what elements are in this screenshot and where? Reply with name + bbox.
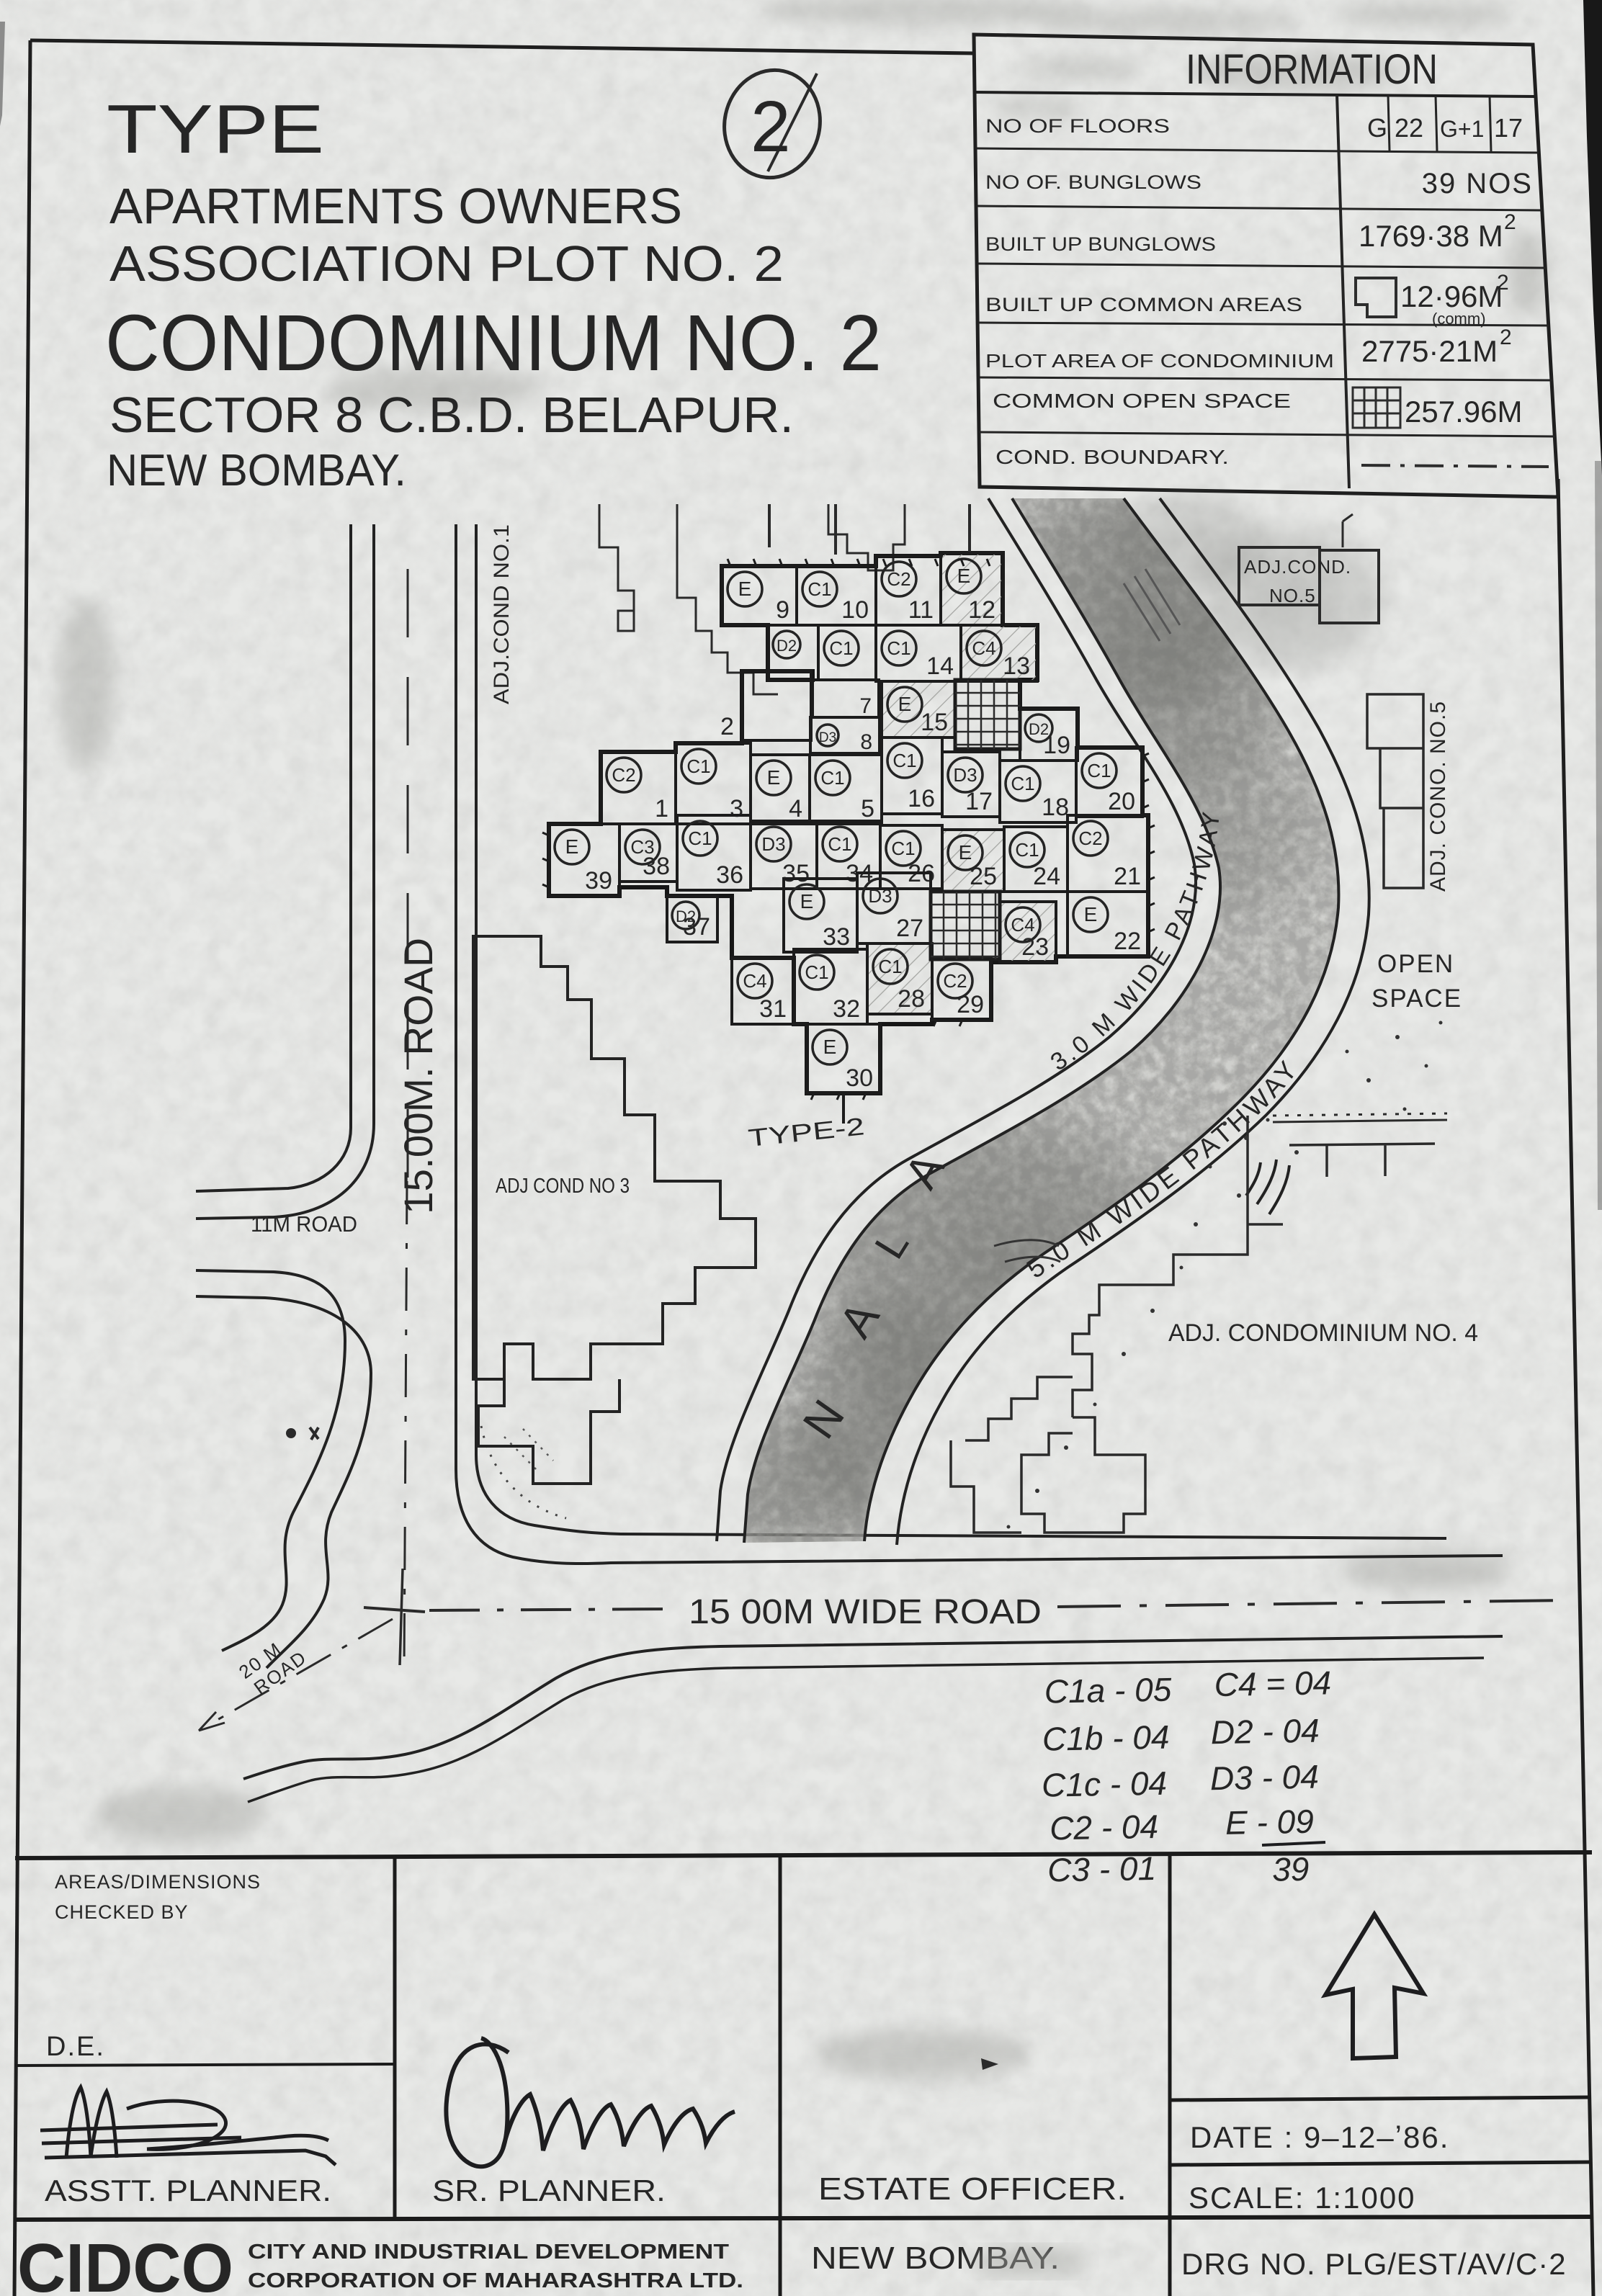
- svg-text:NEW BOMBAY.: NEW BOMBAY.: [107, 446, 406, 495]
- svg-text:D3: D3: [953, 764, 977, 786]
- svg-text:DATE : 9–12–ʼ86.: DATE : 9–12–ʼ86.: [1190, 2120, 1449, 2154]
- svg-text:2775·21M: 2775·21M: [1361, 334, 1498, 368]
- svg-text:CHECKED BY: CHECKED BY: [55, 1901, 189, 1923]
- svg-text:19: 19: [1043, 732, 1070, 759]
- svg-text:ADJ COND NO 3: ADJ COND NO 3: [496, 1175, 630, 1198]
- svg-text:AREAS/DIMENSIONS: AREAS/DIMENSIONS: [55, 1871, 261, 1893]
- svg-text:C1: C1: [892, 750, 916, 771]
- svg-text:4: 4: [789, 795, 802, 822]
- svg-text:39: 39: [1272, 1850, 1310, 1888]
- svg-text:2: 2: [751, 86, 791, 167]
- svg-text:(comm): (comm): [1432, 310, 1486, 328]
- svg-text:PLOT AREA OF CONDOMINIUM: PLOT AREA OF CONDOMINIUM: [985, 350, 1334, 372]
- svg-text:C1: C1: [829, 637, 853, 659]
- svg-text:C1: C1: [1087, 760, 1111, 781]
- svg-text:ADJ. CONDOMINIUM NO. 4: ADJ. CONDOMINIUM NO. 4: [1168, 1319, 1478, 1347]
- svg-text:E: E: [800, 890, 814, 912]
- svg-text:C2: C2: [1078, 828, 1102, 849]
- svg-text:D.E.: D.E.: [46, 2032, 105, 2062]
- svg-text:D2: D2: [777, 637, 797, 655]
- svg-text:E: E: [767, 766, 781, 789]
- svg-text:ASSTT. PLANNER.: ASSTT. PLANNER.: [45, 2174, 331, 2207]
- svg-text:5: 5: [861, 795, 874, 822]
- svg-text:C1: C1: [828, 833, 851, 855]
- svg-text:13: 13: [1003, 653, 1030, 680]
- svg-text:COMMON OPEN SPACE: COMMON OPEN SPACE: [993, 390, 1291, 412]
- svg-text:30: 30: [846, 1064, 873, 1092]
- svg-text:31: 31: [759, 995, 787, 1023]
- svg-text:C2: C2: [612, 764, 635, 786]
- svg-text:E: E: [565, 835, 579, 858]
- svg-text:20: 20: [1108, 788, 1135, 815]
- svg-text:23: 23: [1021, 933, 1049, 961]
- svg-text:C1: C1: [805, 961, 828, 983]
- svg-text:E: E: [957, 565, 971, 587]
- svg-text:24: 24: [1033, 863, 1060, 890]
- svg-text:36: 36: [716, 861, 743, 889]
- svg-text:16: 16: [908, 785, 935, 812]
- svg-text:3: 3: [730, 795, 743, 822]
- svg-text:BUILT UP COMMON AREAS: BUILT UP COMMON AREAS: [985, 294, 1302, 315]
- svg-text:15.00M. ROAD: 15.00M. ROAD: [395, 938, 441, 1214]
- svg-text:17: 17: [965, 788, 993, 815]
- svg-text:21: 21: [1114, 863, 1141, 890]
- svg-text:39 NOS: 39 NOS: [1422, 168, 1533, 199]
- svg-text:D3 - 04: D3 - 04: [1210, 1758, 1320, 1798]
- svg-text:C1: C1: [887, 637, 910, 659]
- svg-text:C4: C4: [743, 970, 766, 992]
- svg-text:8: 8: [860, 730, 872, 754]
- svg-text:D3: D3: [761, 833, 785, 855]
- svg-text:C2: C2: [943, 970, 967, 992]
- svg-text:D2 - 04: D2 - 04: [1210, 1712, 1320, 1752]
- svg-text:33: 33: [823, 923, 850, 951]
- svg-text:ADJ.COND.: ADJ.COND.: [1244, 556, 1351, 578]
- svg-text:9: 9: [776, 596, 789, 624]
- svg-text:BUILT UP BUNGLOWS: BUILT UP BUNGLOWS: [985, 233, 1216, 255]
- svg-text:D3: D3: [819, 730, 836, 745]
- svg-text:15 00M WIDE ROAD: 15 00M WIDE ROAD: [689, 1593, 1042, 1631]
- svg-text:C4: C4: [972, 637, 995, 659]
- svg-text:12·96M: 12·96M: [1400, 279, 1503, 313]
- svg-text:SR. PLANNER.: SR. PLANNER.: [432, 2174, 666, 2207]
- svg-text:C2 - 04: C2 - 04: [1050, 1808, 1159, 1847]
- svg-text:E: E: [823, 1036, 837, 1058]
- svg-text:18: 18: [1042, 794, 1069, 821]
- svg-text:27: 27: [896, 915, 923, 942]
- svg-text:E - 09: E - 09: [1225, 1803, 1315, 1842]
- svg-text:NO OF FLOORS: NO OF FLOORS: [985, 115, 1170, 137]
- svg-text:ESTATE OFFICER.: ESTATE OFFICER.: [818, 2171, 1127, 2207]
- svg-text:APARTMENTS OWNERS: APARTMENTS OWNERS: [109, 178, 682, 234]
- svg-text:DRG NO. PLG/EST/AV/C·2: DRG NO. PLG/EST/AV/C·2: [1181, 2247, 1567, 2281]
- svg-text:C4: C4: [1011, 914, 1034, 936]
- svg-text:C4 = 04: C4 = 04: [1214, 1664, 1331, 1703]
- svg-text:35: 35: [782, 860, 810, 887]
- svg-text:ADJ. CONO. NO.5: ADJ. CONO. NO.5: [1426, 701, 1450, 892]
- svg-text:CITY AND INDUSTRIAL DEVELOPMEN: CITY AND INDUSTRIAL DEVELOPMENT: [248, 2241, 729, 2264]
- svg-text:C1: C1: [686, 755, 710, 777]
- svg-text:CONDOMINIUM NO. 2: CONDOMINIUM NO. 2: [105, 299, 882, 387]
- svg-text:C1c - 04: C1c - 04: [1042, 1764, 1168, 1804]
- svg-text:NO.5: NO.5: [1269, 585, 1316, 606]
- svg-text:INFORMATION: INFORMATION: [1186, 46, 1438, 93]
- svg-text:D3: D3: [868, 885, 892, 907]
- svg-text:E: E: [898, 693, 912, 715]
- svg-text:39: 39: [585, 867, 612, 894]
- svg-text:29: 29: [957, 991, 984, 1018]
- svg-text:2: 2: [1497, 271, 1509, 295]
- svg-text:38: 38: [643, 853, 670, 880]
- svg-text:ADJ.COND NO.1: ADJ.COND NO.1: [490, 524, 514, 704]
- svg-text:2: 2: [1504, 210, 1516, 234]
- svg-text:C1: C1: [688, 828, 712, 849]
- svg-text:SPACE: SPACE: [1371, 985, 1462, 1013]
- svg-text:C1: C1: [878, 956, 902, 977]
- svg-text:E: E: [1084, 903, 1098, 925]
- svg-text:OPEN: OPEN: [1377, 950, 1454, 978]
- svg-text:25: 25: [970, 863, 997, 890]
- svg-text:14: 14: [926, 653, 954, 680]
- svg-text:G+1: G+1: [1440, 116, 1484, 142]
- svg-text:NO OF. BUNGLOWS: NO OF. BUNGLOWS: [985, 171, 1201, 193]
- svg-text:C1: C1: [807, 578, 831, 600]
- svg-text:37: 37: [683, 913, 710, 941]
- svg-text:E: E: [738, 578, 752, 600]
- svg-text:SECTOR 8 C.B.D. BELAPUR.: SECTOR 8 C.B.D. BELAPUR.: [109, 387, 794, 443]
- svg-text:11: 11: [908, 596, 934, 624]
- svg-text:C2: C2: [887, 568, 910, 590]
- svg-text:257.96M: 257.96M: [1405, 395, 1522, 429]
- svg-text:E: E: [959, 841, 972, 864]
- svg-text:C1: C1: [1015, 839, 1039, 861]
- svg-text:C1: C1: [820, 767, 844, 789]
- svg-text:17: 17: [1494, 113, 1523, 143]
- svg-text:C1: C1: [1011, 773, 1034, 794]
- svg-text:7: 7: [859, 694, 872, 718]
- svg-text:TYPE: TYPE: [107, 91, 324, 168]
- svg-text:1: 1: [655, 795, 668, 822]
- svg-text:22: 22: [1395, 113, 1423, 143]
- svg-text:C1b - 04: C1b - 04: [1042, 1718, 1170, 1758]
- svg-text:CIDCO: CIDCO: [17, 2230, 233, 2296]
- svg-text:1769·38 M: 1769·38 M: [1359, 219, 1503, 253]
- svg-text:G: G: [1367, 113, 1387, 143]
- svg-text:28: 28: [898, 985, 925, 1013]
- svg-text:ASSOCIATION PLOT NO. 2: ASSOCIATION PLOT NO. 2: [109, 236, 784, 292]
- svg-text:COND. BOUNDARY.: COND. BOUNDARY.: [995, 446, 1229, 468]
- svg-text:22: 22: [1114, 928, 1141, 955]
- svg-text:32: 32: [833, 995, 860, 1023]
- svg-text:C1: C1: [891, 838, 915, 859]
- svg-text:C1a - 05: C1a - 05: [1044, 1671, 1172, 1710]
- svg-text:15: 15: [921, 709, 948, 736]
- svg-text:CORPORATION OF MAHARASHTRA LTD: CORPORATION OF MAHARASHTRA LTD.: [248, 2269, 743, 2292]
- svg-text:2: 2: [1500, 326, 1512, 349]
- svg-text:2: 2: [720, 713, 734, 740]
- svg-text:SCALE: 1:1000: SCALE: 1:1000: [1189, 2181, 1416, 2215]
- svg-text:10: 10: [841, 596, 869, 624]
- svg-text:11M ROAD: 11M ROAD: [251, 1211, 357, 1237]
- svg-text:12: 12: [968, 596, 995, 624]
